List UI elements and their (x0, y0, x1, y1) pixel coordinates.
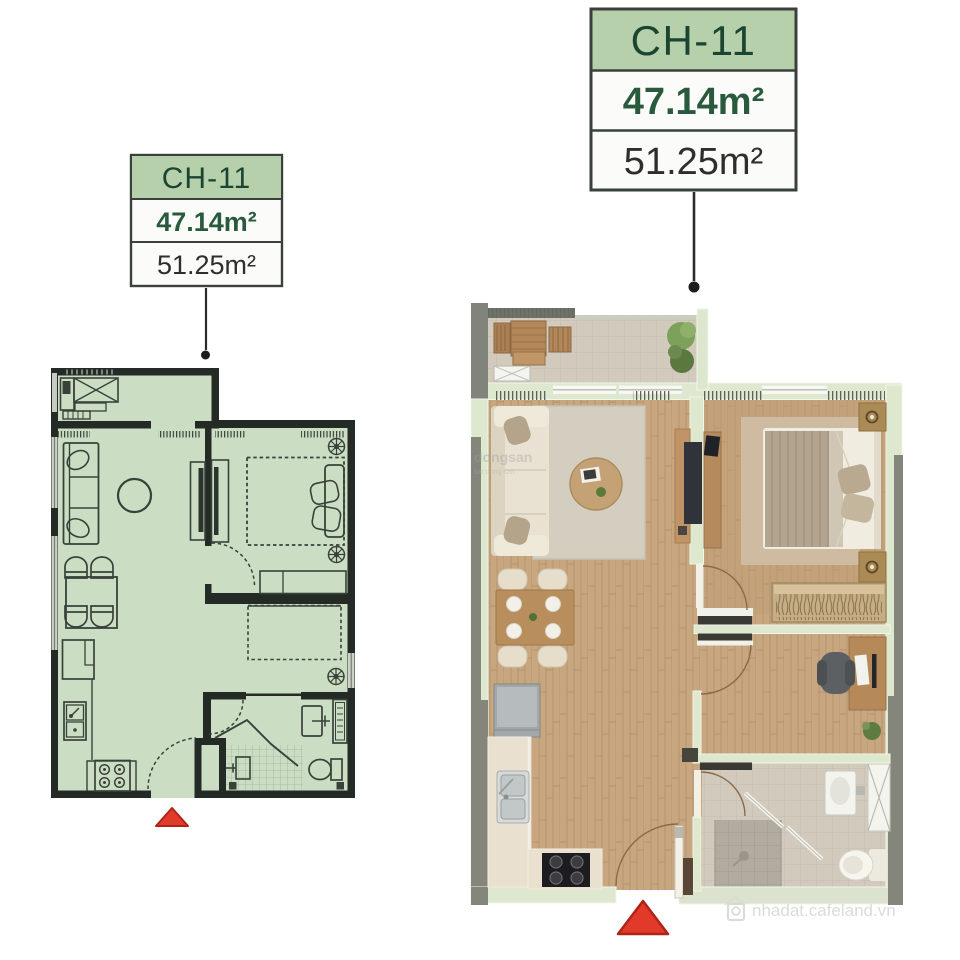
svg-text:CH-11: CH-11 (631, 17, 757, 64)
svg-text:nhadat.cafeland.vn: nhadat.cafeland.vn (752, 901, 896, 920)
svg-text:bat dong san: bat dong san (474, 469, 515, 476)
svg-text:51.25m²: 51.25m² (624, 141, 763, 183)
svg-text:47.14m²: 47.14m² (623, 81, 765, 123)
svg-text:47.14m²: 47.14m² (156, 207, 257, 237)
svg-text:51.25m²: 51.25m² (157, 250, 256, 280)
svg-text:dongsan: dongsan (474, 449, 532, 465)
svg-text:CH-11: CH-11 (162, 162, 251, 195)
